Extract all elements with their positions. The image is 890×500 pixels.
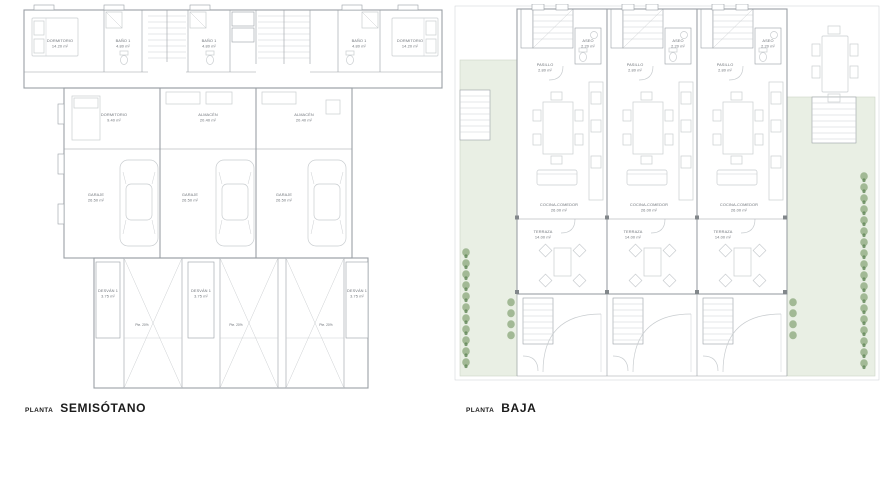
room-label-garaje: GARAJE26.50 m² (88, 192, 105, 202)
toilet-icon (120, 51, 128, 65)
room-label-bano1: BAÑO 14.80 m² (352, 38, 367, 48)
caption-semisotano: PLANTA SEMISÓTANO (25, 401, 146, 415)
caption-baja: PLANTA BAJA (466, 401, 536, 415)
room-label-terraza: TERRAZA14.00 m² (714, 229, 733, 239)
ramp-slope-label: Pte. 20% (135, 323, 148, 327)
plan-baja-drawing: ASEO2.20 m² ASEO2.20 m² ASEO2.20 m² PASI… (452, 4, 884, 396)
room-label-aseo: ASEO2.20 m² (671, 38, 685, 48)
unit-structure (521, 9, 603, 372)
toilet-icon (206, 51, 214, 65)
room-label-garaje: GARAJE26.50 m² (182, 192, 199, 202)
floorplan-sheet: DORMITORIO14.20 m² BAÑO 14.80 m² BAÑO 14… (0, 0, 890, 500)
caption-prefix: PLANTA (25, 407, 53, 414)
unit-structure (611, 9, 693, 372)
baja-units (515, 4, 787, 376)
plan-semisotano-drawing: DORMITORIO14.20 m² BAÑO 14.80 m² BAÑO 14… (8, 4, 448, 396)
unit-structure (701, 9, 783, 372)
ramp-slope-label: Pte. 20% (319, 323, 332, 327)
room-label-cocina-comedor: COCINA-COMEDOR26.00 m² (720, 202, 758, 212)
garden-dining-table-icon (812, 26, 858, 102)
car-icon (120, 160, 158, 246)
room-label-pasillo: PASILLO2.80 m² (537, 62, 554, 72)
room-label-pasillo: PASILLO2.80 m² (717, 62, 734, 72)
room-label-almacen: ALMACÉN20.40 m² (294, 112, 314, 122)
room-label-terraza: TERRAZA14.00 m² (624, 229, 643, 239)
toilet-icon (346, 51, 354, 65)
room-label-aseo: ASEO2.20 m² (761, 38, 775, 48)
ramp-hatch (124, 258, 182, 388)
bed-icon (392, 18, 438, 56)
bed-icon (32, 18, 78, 56)
car-icon (308, 160, 346, 246)
caption-title: BAJA (501, 401, 536, 415)
semisotano-top-band (24, 5, 442, 88)
car-icon (216, 160, 254, 246)
ramp-hatch (286, 258, 344, 388)
ramp-slope-label: Pte. 20% (229, 323, 242, 327)
room-label-aseo: ASEO2.20 m² (581, 38, 595, 48)
room-label-pasillo: PASILLO2.80 m² (627, 62, 644, 72)
room-label-cocina-comedor: COCINA-COMEDOR26.00 m² (630, 202, 668, 212)
room-label-terraza: TERRAZA14.00 m² (534, 229, 553, 239)
caption-title: SEMISÓTANO (60, 401, 146, 415)
room-label-almacen: ALMACÉN20.40 m² (198, 112, 218, 122)
staircase-icon (258, 10, 310, 64)
staircase-icon (148, 10, 186, 62)
room-label-cocina-comedor: COCINA-COMEDOR26.00 m² (540, 202, 578, 212)
caption-prefix: PLANTA (466, 407, 494, 414)
room-label-bano1: BAÑO 14.80 m² (202, 38, 217, 48)
room-label-garaje: GARAJE26.50 m² (276, 192, 293, 202)
room-label-dormitorio-small: DORMITORIO9.40 m² (101, 112, 127, 122)
room-label-bano1: BAÑO 14.80 m² (116, 38, 131, 48)
